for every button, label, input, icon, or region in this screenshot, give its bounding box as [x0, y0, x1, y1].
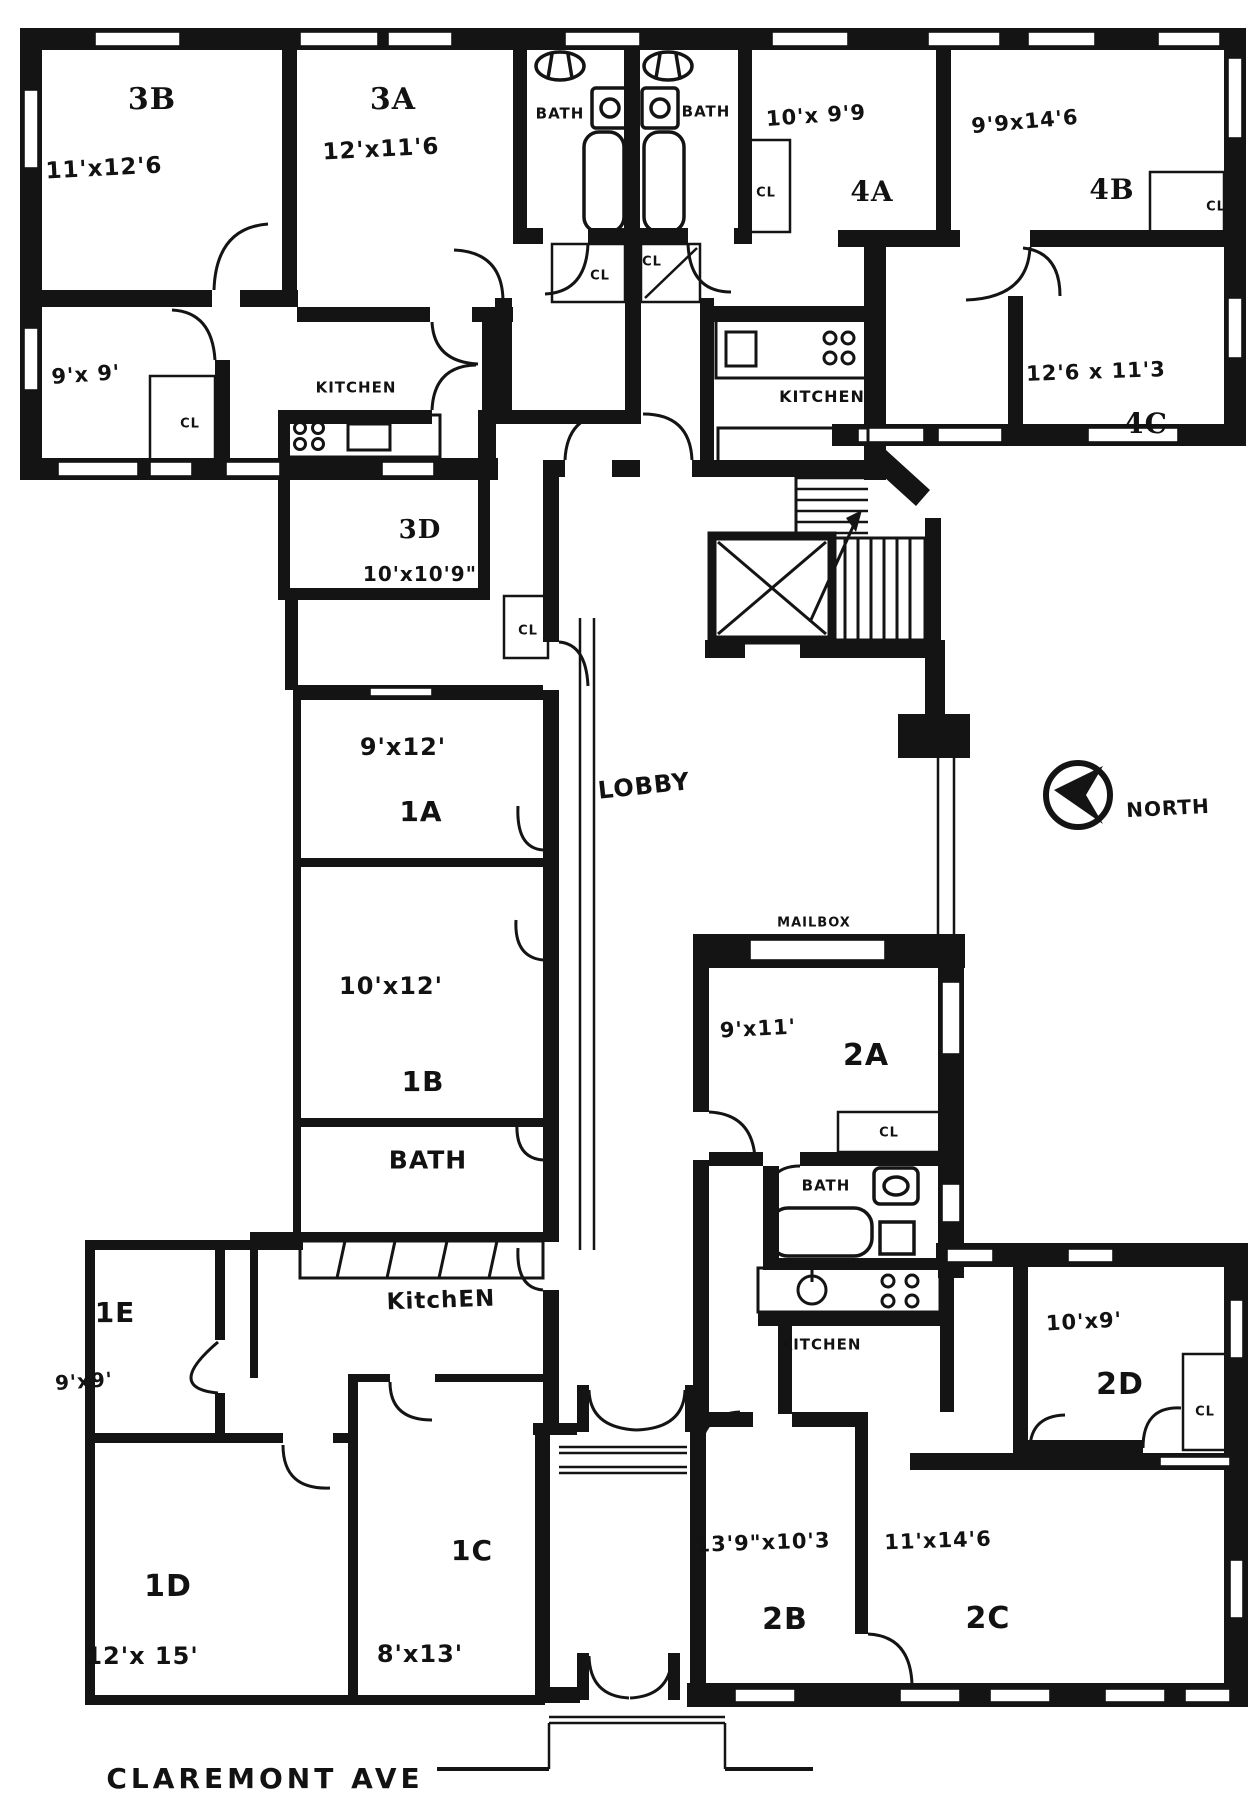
stove-icon [295, 423, 306, 434]
floor-plan-page: 3B11'x12'63A12'x11'6BATHBATH10'x 9'94A9'… [0, 0, 1258, 1807]
sink-icon [348, 424, 390, 450]
bathtub-icon [644, 132, 684, 232]
stove-icon [882, 1275, 894, 1287]
bathtub-icon [584, 132, 624, 232]
counter [300, 1241, 543, 1278]
north-compass-icon [1046, 763, 1110, 827]
bathtub-icon [770, 1208, 872, 1256]
toilet-icon [592, 88, 628, 128]
sink-icon [644, 52, 692, 80]
toilet-icon [874, 1168, 918, 1204]
floor-plan-drawing [0, 0, 1258, 1807]
elevator [712, 536, 832, 640]
bath-fixtures-2a [770, 1168, 918, 1256]
toilet-icon [642, 88, 678, 128]
counter [716, 320, 866, 378]
sink-icon [536, 52, 584, 80]
stove-icon [824, 332, 836, 344]
sink-icon [880, 1222, 914, 1254]
sink-icon [726, 332, 756, 366]
bath-fixtures-upper [536, 52, 692, 232]
entry-steps [437, 1447, 813, 1769]
